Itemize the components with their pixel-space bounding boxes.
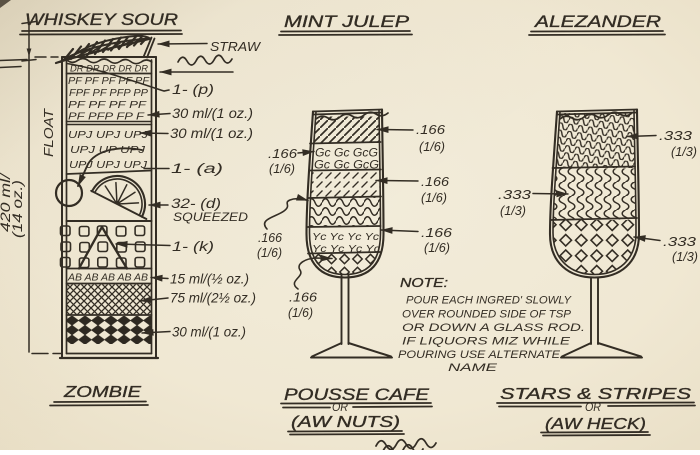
svg-text:(1/6): (1/6)	[419, 139, 445, 154]
svg-text:Yc Yc Yc Yc: Yc Yc Yc Yc	[312, 231, 380, 243]
svg-text:IF LIQUORS MIZ WHILE: IF LIQUORS MIZ WHILE	[402, 336, 571, 348]
svg-text:1- (p): 1- (p)	[172, 82, 214, 97]
svg-text:.333: .333	[659, 128, 693, 143]
svg-text:30 ml/(1 oz.): 30 ml/(1 oz.)	[172, 325, 246, 340]
svg-text:(1/6): (1/6)	[269, 161, 295, 176]
svg-text:NOTE:: NOTE:	[400, 275, 448, 290]
svg-text:OVER ROUNDED SIDE OF TSP: OVER ROUNDED SIDE OF TSP	[402, 309, 572, 321]
svg-text:POUSSE CAFE: POUSSE CAFE	[284, 386, 430, 404]
svg-text:STRAW: STRAW	[210, 39, 262, 54]
svg-text:UPJ UPJ UPJ: UPJ UPJ UPJ	[69, 159, 148, 171]
svg-text:(1/3): (1/3)	[672, 249, 698, 264]
svg-text:(1/6): (1/6)	[288, 305, 313, 320]
svg-text:75 ml/(2½ oz.): 75 ml/(2½ oz.)	[170, 291, 256, 306]
svg-text:(1/3): (1/3)	[500, 203, 526, 218]
svg-text:.166: .166	[258, 230, 283, 245]
svg-text:30 ml/(1 oz.): 30 ml/(1 oz.)	[172, 106, 253, 121]
svg-text:.166: .166	[268, 146, 298, 161]
svg-text:POUR EACH INGRED' SLOWLY: POUR EACH INGRED' SLOWLY	[406, 295, 572, 307]
svg-text:NAME: NAME	[448, 362, 498, 374]
svg-text:.333: .333	[663, 234, 697, 249]
svg-text:(14 oz.): (14 oz.)	[10, 180, 25, 238]
svg-text:.333: .333	[498, 187, 532, 202]
svg-text:ZOMBIE: ZOMBIE	[63, 384, 142, 401]
svg-text:ALEZANDER: ALEZANDER	[534, 12, 661, 31]
svg-text:POURING USE ALTERNATE: POURING USE ALTERNATE	[398, 349, 561, 361]
svg-text:32- (d): 32- (d)	[171, 196, 221, 211]
svg-text:PF PF PF PF PF: PF PF PF PF PF	[68, 76, 150, 87]
svg-text:.166: .166	[421, 174, 450, 189]
svg-text:WHISKEY SOUR: WHISKEY SOUR	[25, 10, 178, 29]
svg-text:AB AB AB AB AB: AB AB AB AB AB	[67, 272, 148, 284]
svg-text:MINT JULEP: MINT JULEP	[284, 12, 410, 31]
svg-text:OR DOWN A GLASS ROD.: OR DOWN A GLASS ROD.	[402, 322, 585, 334]
svg-text:.166: .166	[289, 290, 318, 305]
svg-text:15 ml/(½ oz.): 15 ml/(½ oz.)	[170, 272, 249, 287]
svg-text:FLOAT: FLOAT	[42, 107, 56, 157]
svg-text:SQUEEZED: SQUEEZED	[173, 212, 248, 224]
svg-text:(AW HECK): (AW HECK)	[545, 416, 646, 433]
svg-text:30 ml/(1 oz.): 30 ml/(1 oz.)	[170, 126, 253, 141]
svg-text:OR: OR	[332, 402, 348, 414]
svg-text:(1/6): (1/6)	[421, 190, 447, 205]
svg-text:OR: OR	[585, 402, 601, 414]
svg-text:(AW NUTS): (AW NUTS)	[291, 414, 400, 431]
svg-text:.166: .166	[416, 122, 446, 137]
svg-text:UPJ UPJ UPJ: UPJ UPJ UPJ	[68, 129, 149, 141]
svg-text:PF PF PF PF: PF PF PF PF	[68, 100, 147, 111]
svg-text:(1/6): (1/6)	[424, 240, 450, 255]
svg-text:1- (k): 1- (k)	[172, 239, 214, 254]
svg-text:1- (a): 1- (a)	[171, 161, 223, 176]
svg-text:.166: .166	[421, 225, 453, 240]
svg-text:STARS & STRIPES: STARS & STRIPES	[500, 386, 691, 403]
svg-text:Gc Gc GcG: Gc Gc GcG	[315, 148, 378, 160]
svg-text:FPF PF PFP PP: FPF PF PFP PP	[69, 88, 148, 99]
svg-text:(1/6): (1/6)	[257, 245, 282, 260]
svg-text:(1/3): (1/3)	[671, 144, 697, 159]
